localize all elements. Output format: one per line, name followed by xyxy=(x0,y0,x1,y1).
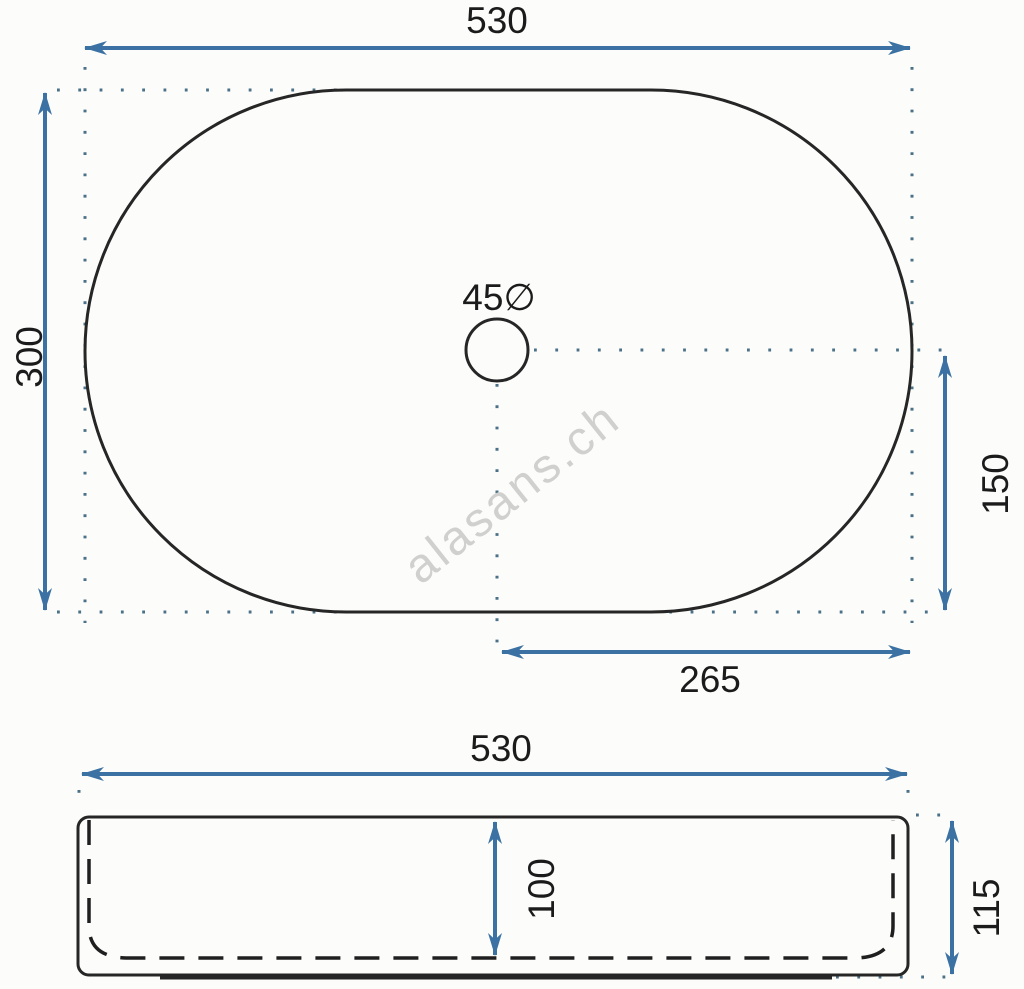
side-view: 530 100 115 xyxy=(78,728,1007,977)
dim-label-depth: 300 xyxy=(9,326,50,388)
dim-label-drain-offset-horizontal: 265 xyxy=(679,659,741,700)
dim-label-inner-depth: 100 xyxy=(521,858,562,920)
drain-hole-circle xyxy=(466,319,528,381)
dim-label-overall-height: 115 xyxy=(966,879,1007,938)
washbasin-dimension-drawing: 45∅ 530 300 150 265 alasans.ch 530 xyxy=(0,0,1024,989)
technical-drawing-page: 45∅ 530 300 150 265 alasans.ch 530 xyxy=(0,0,1024,989)
dim-label-top-width: 530 xyxy=(466,0,528,41)
dim-label-drain-offset-vertical: 150 xyxy=(975,453,1016,515)
basin-inner-bowl-dashed xyxy=(89,820,893,958)
top-view: 45∅ 530 300 150 265 alasans.ch xyxy=(9,0,1016,700)
watermark-text: alasans.ch xyxy=(394,391,630,594)
drain-diameter-label: 45∅ xyxy=(462,277,535,318)
dim-label-side-width: 530 xyxy=(470,728,532,769)
